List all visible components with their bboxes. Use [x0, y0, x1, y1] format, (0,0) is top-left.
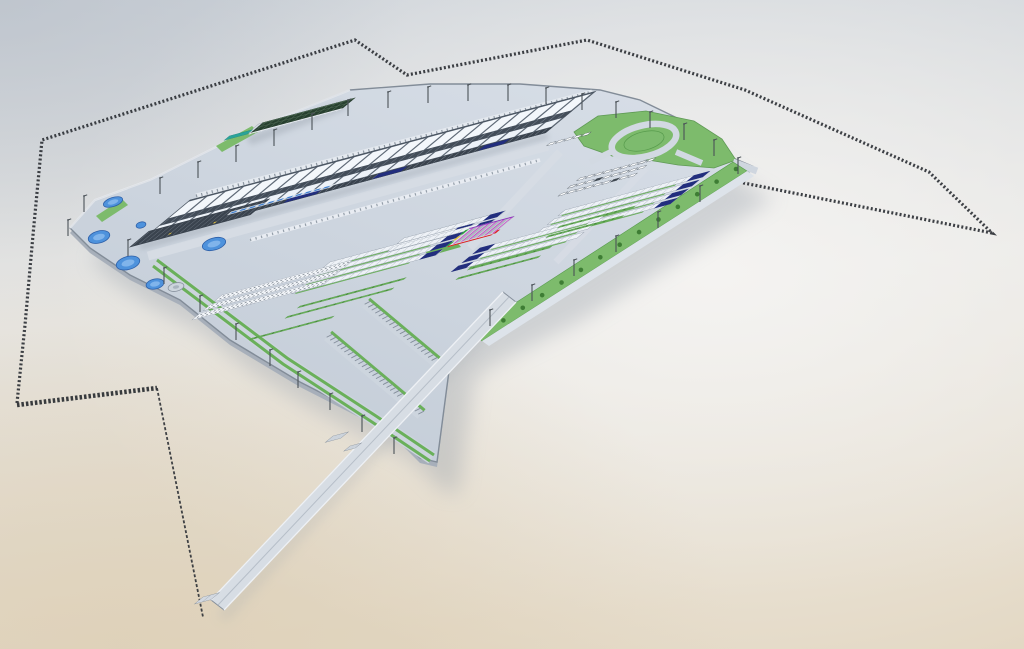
se-tree-row	[695, 192, 700, 197]
light-poles	[657, 211, 659, 213]
light-poles	[427, 86, 429, 88]
se-tree-row	[540, 293, 545, 298]
light-poles	[573, 259, 575, 261]
light-poles	[467, 84, 469, 86]
light-poles	[649, 111, 651, 113]
light-poles	[713, 139, 715, 141]
light-poles	[311, 113, 313, 115]
site-3d-render	[0, 0, 1024, 649]
light-poles	[127, 239, 129, 241]
light-poles	[615, 235, 617, 237]
light-poles	[297, 371, 299, 373]
light-poles	[273, 129, 275, 131]
light-poles	[67, 219, 69, 221]
light-poles	[581, 93, 583, 95]
light-poles	[531, 284, 533, 286]
se-tree-row	[598, 255, 603, 260]
light-poles	[235, 323, 237, 325]
se-tree-row	[579, 268, 584, 273]
se-tree-row	[501, 318, 506, 323]
light-poles	[329, 393, 331, 395]
light-poles	[683, 123, 685, 125]
se-tree-row	[676, 205, 681, 210]
se-tree-row	[637, 230, 642, 235]
light-poles	[159, 177, 161, 179]
light-poles	[489, 309, 491, 311]
light-poles	[393, 437, 395, 439]
light-poles	[507, 84, 509, 86]
se-tree-row	[617, 242, 622, 247]
se-tree-row	[520, 305, 525, 310]
light-poles	[615, 101, 617, 103]
light-poles	[545, 87, 547, 89]
light-poles	[83, 195, 85, 197]
light-poles	[361, 415, 363, 417]
light-poles	[235, 145, 237, 147]
light-poles	[737, 157, 739, 159]
viewport	[0, 0, 1024, 649]
se-tree-row	[559, 280, 564, 285]
light-poles	[163, 267, 165, 269]
light-poles	[387, 91, 389, 93]
light-poles	[197, 161, 199, 163]
light-poles	[269, 349, 271, 351]
light-poles	[199, 295, 201, 297]
light-poles	[347, 99, 349, 101]
se-tree-row	[714, 179, 719, 184]
light-poles	[699, 185, 701, 187]
